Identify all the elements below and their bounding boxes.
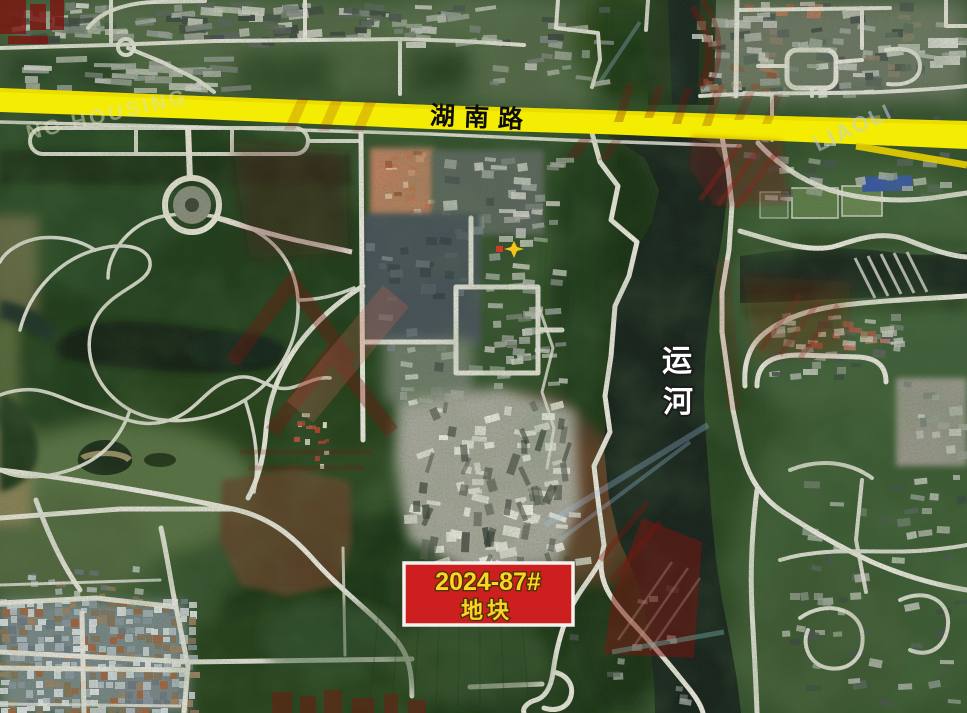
svg-text:湖南路: 湖南路	[429, 102, 532, 135]
svg-text:运: 运	[662, 345, 692, 378]
svg-text:河: 河	[663, 386, 693, 419]
svg-text:2024-87#: 2024-87#	[435, 568, 541, 596]
svg-text:地块: 地块	[461, 598, 513, 623]
